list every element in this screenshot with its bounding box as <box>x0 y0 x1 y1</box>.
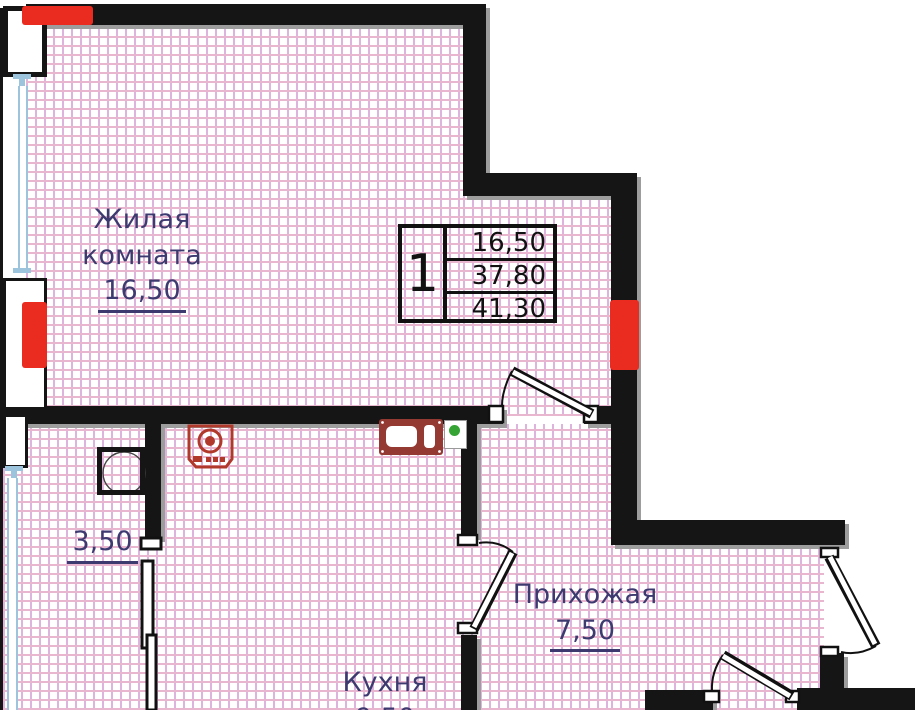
kitchen-sink-icon <box>379 419 443 455</box>
unit-info-table: 1 16,50 37,80 41,30 <box>398 224 557 323</box>
hallway-area: 7,50 <box>550 613 620 653</box>
living-room-label: Жилая комната 16,50 <box>62 202 222 313</box>
status-dot-icon <box>444 420 467 449</box>
entrance-door <box>821 548 876 656</box>
bathroom-area: 3,50 <box>67 524 137 564</box>
washing-machine-icon <box>189 426 232 467</box>
living-room-door <box>489 371 598 422</box>
living-room-name-1: Жилая <box>62 202 222 238</box>
rooms-count: 1 <box>402 228 447 319</box>
living-room-name-2: комната <box>62 238 222 274</box>
floor-plan: 1 16,50 37,80 41,30 Жилая комната 16,50 … <box>0 0 915 710</box>
area-living: 37,80 <box>447 258 553 294</box>
kitchen-name: Кухня <box>315 665 455 701</box>
kitchen-area: 9,50 <box>350 701 420 710</box>
door-symbols <box>0 0 915 710</box>
bathroom-label: 3,50 <box>55 524 150 564</box>
living-room-area: 16,50 <box>98 273 185 313</box>
bathroom-door <box>141 538 161 710</box>
area-room: 16,50 <box>447 228 553 258</box>
hallway-bottom-door <box>704 655 799 702</box>
hallway-label: Прихожая 7,50 <box>500 577 670 652</box>
hallway-name: Прихожая <box>500 577 670 613</box>
kitchen-label: Кухня 9,50 <box>315 665 455 710</box>
area-total: 41,30 <box>447 294 553 324</box>
shower-tray-square <box>97 447 145 495</box>
